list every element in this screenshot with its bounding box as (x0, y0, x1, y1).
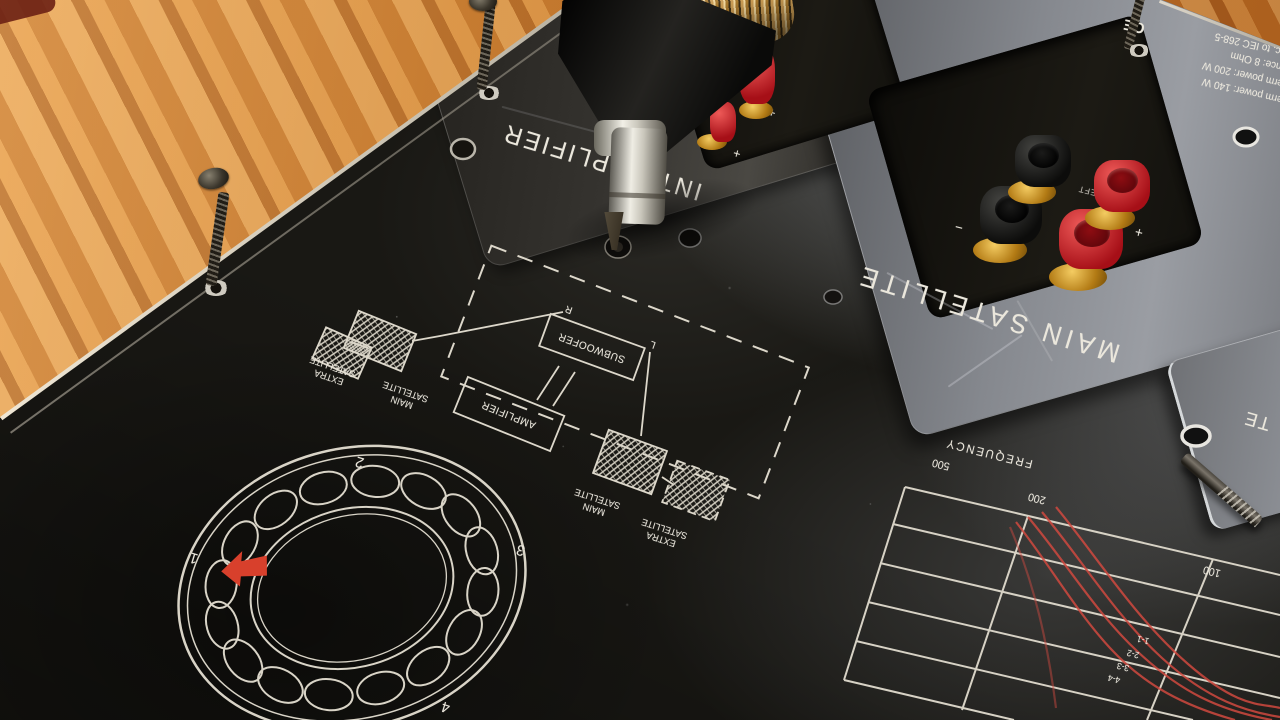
red-binding-post (1094, 160, 1150, 212)
screwdriver-socket (608, 127, 667, 225)
screw-hole-ring (1128, 44, 1150, 57)
photo-scene: INT AMPLIFIER MAIN SATELLITE long term p… (0, 0, 1280, 720)
black-binding-post (1015, 135, 1071, 187)
socket-groove (609, 192, 665, 199)
